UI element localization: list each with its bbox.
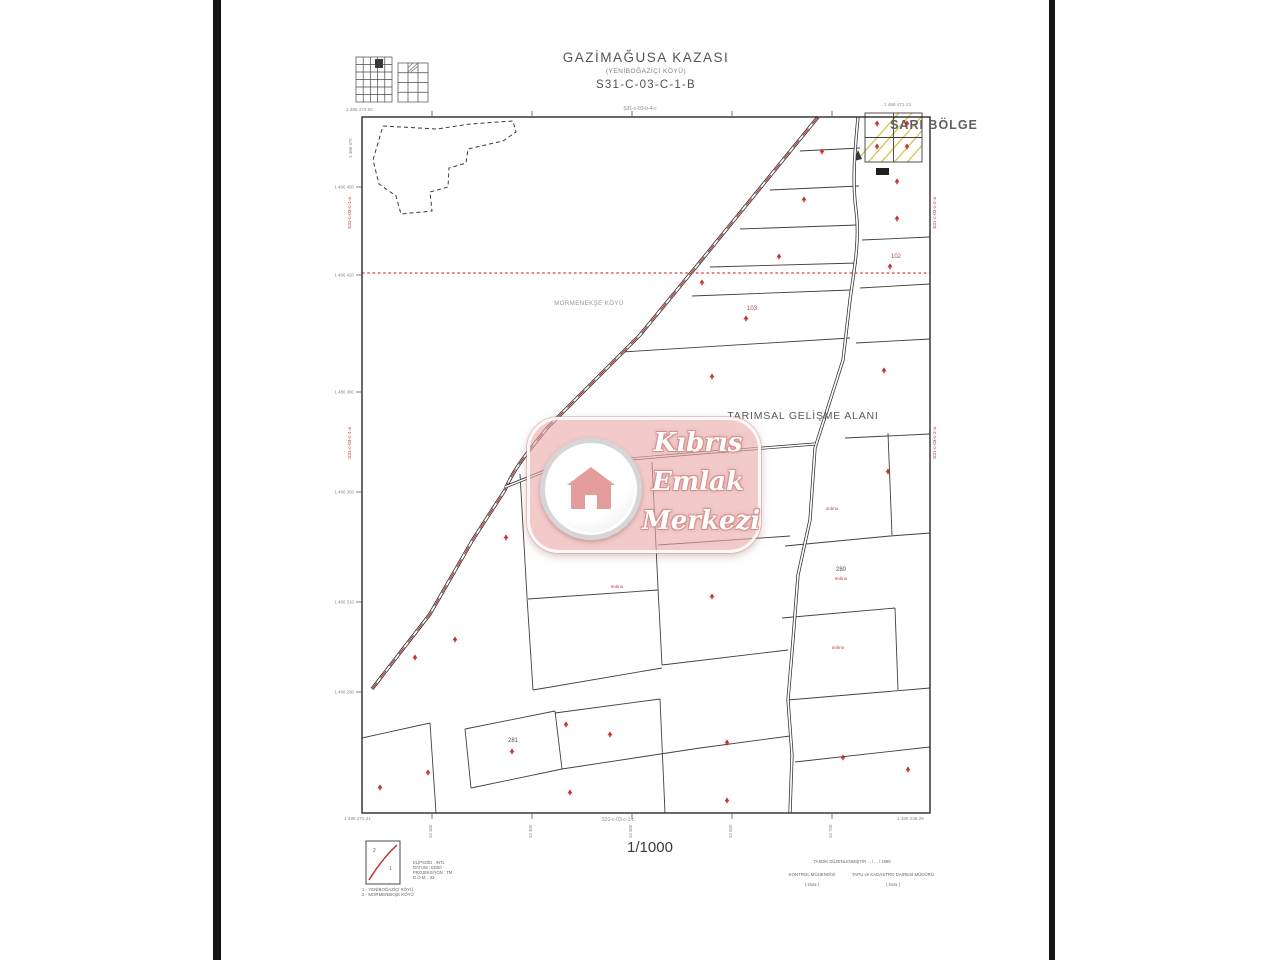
grid-coordinate-left: 1 486 350	[334, 490, 354, 495]
red-crop-annotation: ınıİınıı	[826, 505, 839, 511]
control-engineer-name: ( imza )	[805, 882, 820, 887]
road-main-diagonal	[372, 117, 818, 689]
tree-symbol-icon	[725, 797, 730, 803]
parcel-number: 280	[836, 567, 847, 573]
watermark-house-badge	[540, 438, 642, 540]
map-place-label: TARIMSAL GELİŞME ALANI	[727, 409, 878, 422]
control-engineer-title: KONTROL MÜHENDİSİ	[789, 872, 836, 877]
scanned-cadastral-map-page: GAZİMAĞUSA KAZASI (YENİBOĞAZİÇİ KÖYÜ) S3…	[0, 0, 1280, 960]
index-grid-1	[356, 57, 392, 102]
tree-symbol-icon	[378, 784, 383, 790]
approval-line: TASDİK DÜZENLENMİŞTİR ... / ... / 1999	[813, 859, 891, 864]
scale-text: 1/1000	[627, 839, 673, 856]
tree-symbol-icon	[608, 731, 613, 737]
tree-symbol-icon	[510, 748, 515, 754]
signature-block: TASDİK DÜZENLENMİŞTİR ... / ... / 1999 K…	[789, 859, 935, 887]
tree-symbol-icon	[710, 373, 715, 379]
sheet-ref-right: S31-c-03-c-2-a	[932, 427, 938, 459]
kibris-emlak-merkezi-watermark: Kıbrıs Emlak Merkezi	[527, 417, 761, 553]
tree-symbol-icon	[841, 754, 846, 760]
tree-symbol-icon	[426, 769, 431, 775]
tree-symbol-icon	[820, 148, 825, 154]
grid-coordinate-left: 1 486 310	[334, 600, 354, 605]
grid-coordinate-bottom: 43 300	[428, 824, 433, 838]
grid-coordinate-bottom: 43 400	[528, 824, 533, 838]
tree-symbol-icon	[895, 178, 900, 184]
grid-coordinate-bottom: 43 500	[628, 824, 633, 838]
tree-symbol-icon	[413, 654, 418, 660]
index-grid-2	[398, 63, 428, 102]
watermark-wordmark: Kıbrıs Emlak Merkezi	[642, 424, 754, 541]
red-crop-annotation: ınıİınıı	[832, 644, 845, 650]
red-crop-annotation: ınıİınıı	[835, 575, 848, 581]
registry-director-name: ( imza )	[886, 882, 901, 887]
watermark-line: Kıbrıs	[642, 424, 754, 463]
sheet-ref-top: S31-c-03-b-4-c	[623, 106, 657, 112]
grid-coordinate-left: 1 486 420	[334, 273, 354, 278]
red-crop-annotation: ınıİınıı	[611, 583, 624, 589]
tree-symbol-icon	[744, 315, 749, 321]
tree-symbol-icon	[710, 593, 715, 599]
tree-symbol-icon	[875, 120, 880, 126]
coord-bottom-left: 1 486 272.21	[344, 816, 371, 821]
coord-bottom-right: 1 486 236.26	[897, 816, 924, 821]
house-icon	[569, 467, 613, 511]
grid-coordinate-left: 1 486 380	[334, 390, 354, 395]
watermark-line: Emlak	[642, 463, 754, 502]
grid-coordinate-left: 1 486 450	[334, 185, 354, 190]
legend-rows: ELİPSOİD : INTL DATUM : ED50 PROJEKSİYON…	[362, 860, 453, 897]
tree-symbol-icon	[888, 263, 893, 269]
sheet-ref-bottom: S31-c-03-c-1-c	[601, 817, 635, 823]
map-place-label: MORMENEKŞE KÖYÜ	[554, 300, 624, 307]
grid-coordinate-left: 1 486 280	[334, 690, 354, 695]
grid-coordinate-bottom: 43 600	[728, 824, 733, 838]
map-place-label: SARI BÖLGE	[890, 117, 978, 132]
tree-symbol-icon	[453, 636, 458, 642]
legend-box-label: 2	[373, 848, 376, 854]
coord-top-left: 1 486 472.00	[346, 107, 373, 112]
sheet-ref-right: S31-c-03-c-2-a	[932, 197, 938, 229]
tree-symbol-icon	[905, 143, 910, 149]
legend-box-label: 1	[389, 866, 392, 872]
coord-left-vertical: 1 486 470	[348, 138, 353, 158]
sheet-ref-left: S31-c-03-c-1-a	[347, 427, 353, 459]
grid-coordinate-bottom: 43 700	[828, 824, 833, 838]
parcel-number: 103	[747, 306, 758, 312]
registry-director-title: TAPU ve KADASTRO DAİRESİ MÜDÜRÜ	[852, 872, 934, 877]
parcel-number: 281	[508, 738, 519, 744]
tree-symbol-icon	[875, 143, 880, 149]
watermark-line: Merkezi	[642, 502, 754, 541]
tree-symbol-icon	[882, 367, 887, 373]
tree-symbol-icon	[802, 196, 807, 202]
legend-row: D.O.M. : 33	[413, 875, 435, 880]
parcel-number: 102	[891, 254, 902, 260]
coord-top-right: 1 486 471.13	[884, 102, 911, 107]
dashed-boundary	[373, 121, 516, 214]
tree-symbol-icon	[564, 721, 569, 727]
legend-village: 2 - MORMENEKŞE KÖYÜ	[362, 892, 414, 897]
sheet-ref-left: S31-c-03-c-1-a	[347, 197, 353, 229]
solid-black-mark	[876, 168, 889, 175]
tree-symbol-icon	[568, 789, 573, 795]
legend-box: 2 1	[366, 841, 400, 884]
tree-symbol-icon	[777, 253, 782, 259]
tree-symbol-icon	[504, 534, 509, 540]
tree-symbol-icon	[700, 279, 705, 285]
tree-symbol-icon	[895, 215, 900, 221]
tree-symbol-icon	[906, 766, 911, 772]
road-right-winding	[788, 117, 858, 813]
